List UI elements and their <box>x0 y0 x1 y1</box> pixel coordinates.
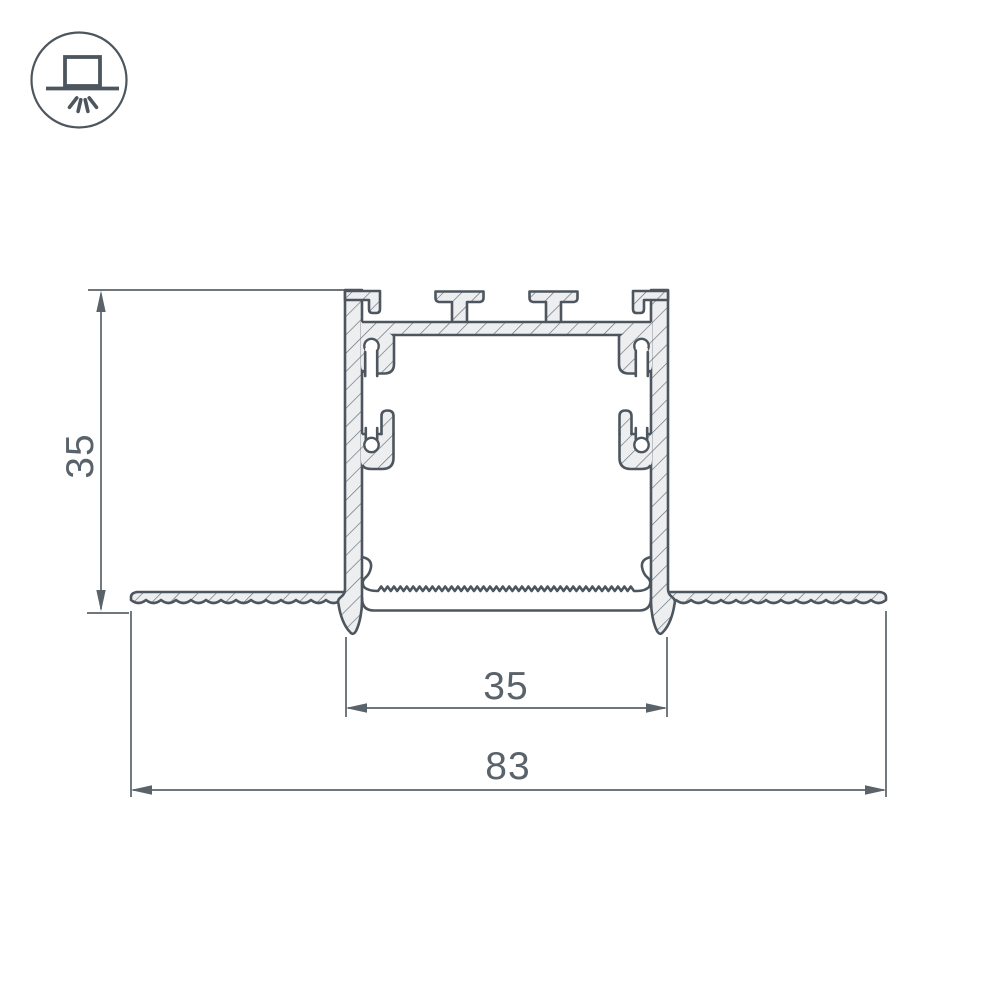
dim-inner-width-label: 35 <box>483 665 528 708</box>
dim-height-label: 35 <box>59 433 102 478</box>
icon-circle <box>32 33 127 128</box>
icon-lamp-box <box>65 57 100 86</box>
right-flange <box>667 592 886 603</box>
arrow-up-icon <box>96 291 105 313</box>
recessed-mount-light-icon <box>32 33 127 128</box>
arrow-down-icon <box>96 590 105 612</box>
arrow-right-icon <box>646 703 668 712</box>
diffuser-seat-serration <box>362 557 651 591</box>
upper-right-screw-boss <box>619 333 652 377</box>
t-fin-1 <box>436 292 484 326</box>
arrow-left-icon <box>131 785 153 794</box>
upper-left-screw-boss <box>361 333 394 377</box>
lower-right-screw-boss <box>620 411 653 470</box>
left-flange <box>131 592 346 603</box>
dim-overall-width-label: 83 <box>485 745 530 788</box>
profile-technical-drawing: 35 35 83 <box>0 0 1000 1000</box>
arrow-left-icon <box>346 703 368 712</box>
dimensions: 35 35 83 <box>59 290 887 797</box>
t-fin-2 <box>530 292 578 326</box>
bottom-face-line <box>362 598 651 611</box>
arrow-right-icon <box>865 785 887 794</box>
lower-left-screw-boss <box>361 411 394 470</box>
icon-light-rays <box>70 98 97 112</box>
drawing-canvas: 35 35 83 <box>0 0 1000 1000</box>
height-dimension: 35 <box>59 290 344 613</box>
left-wall <box>338 290 362 634</box>
right-wall <box>651 290 675 634</box>
top-web <box>361 322 652 335</box>
profile-cross-section <box>131 290 886 634</box>
inner-width-dimension: 35 <box>346 637 668 717</box>
